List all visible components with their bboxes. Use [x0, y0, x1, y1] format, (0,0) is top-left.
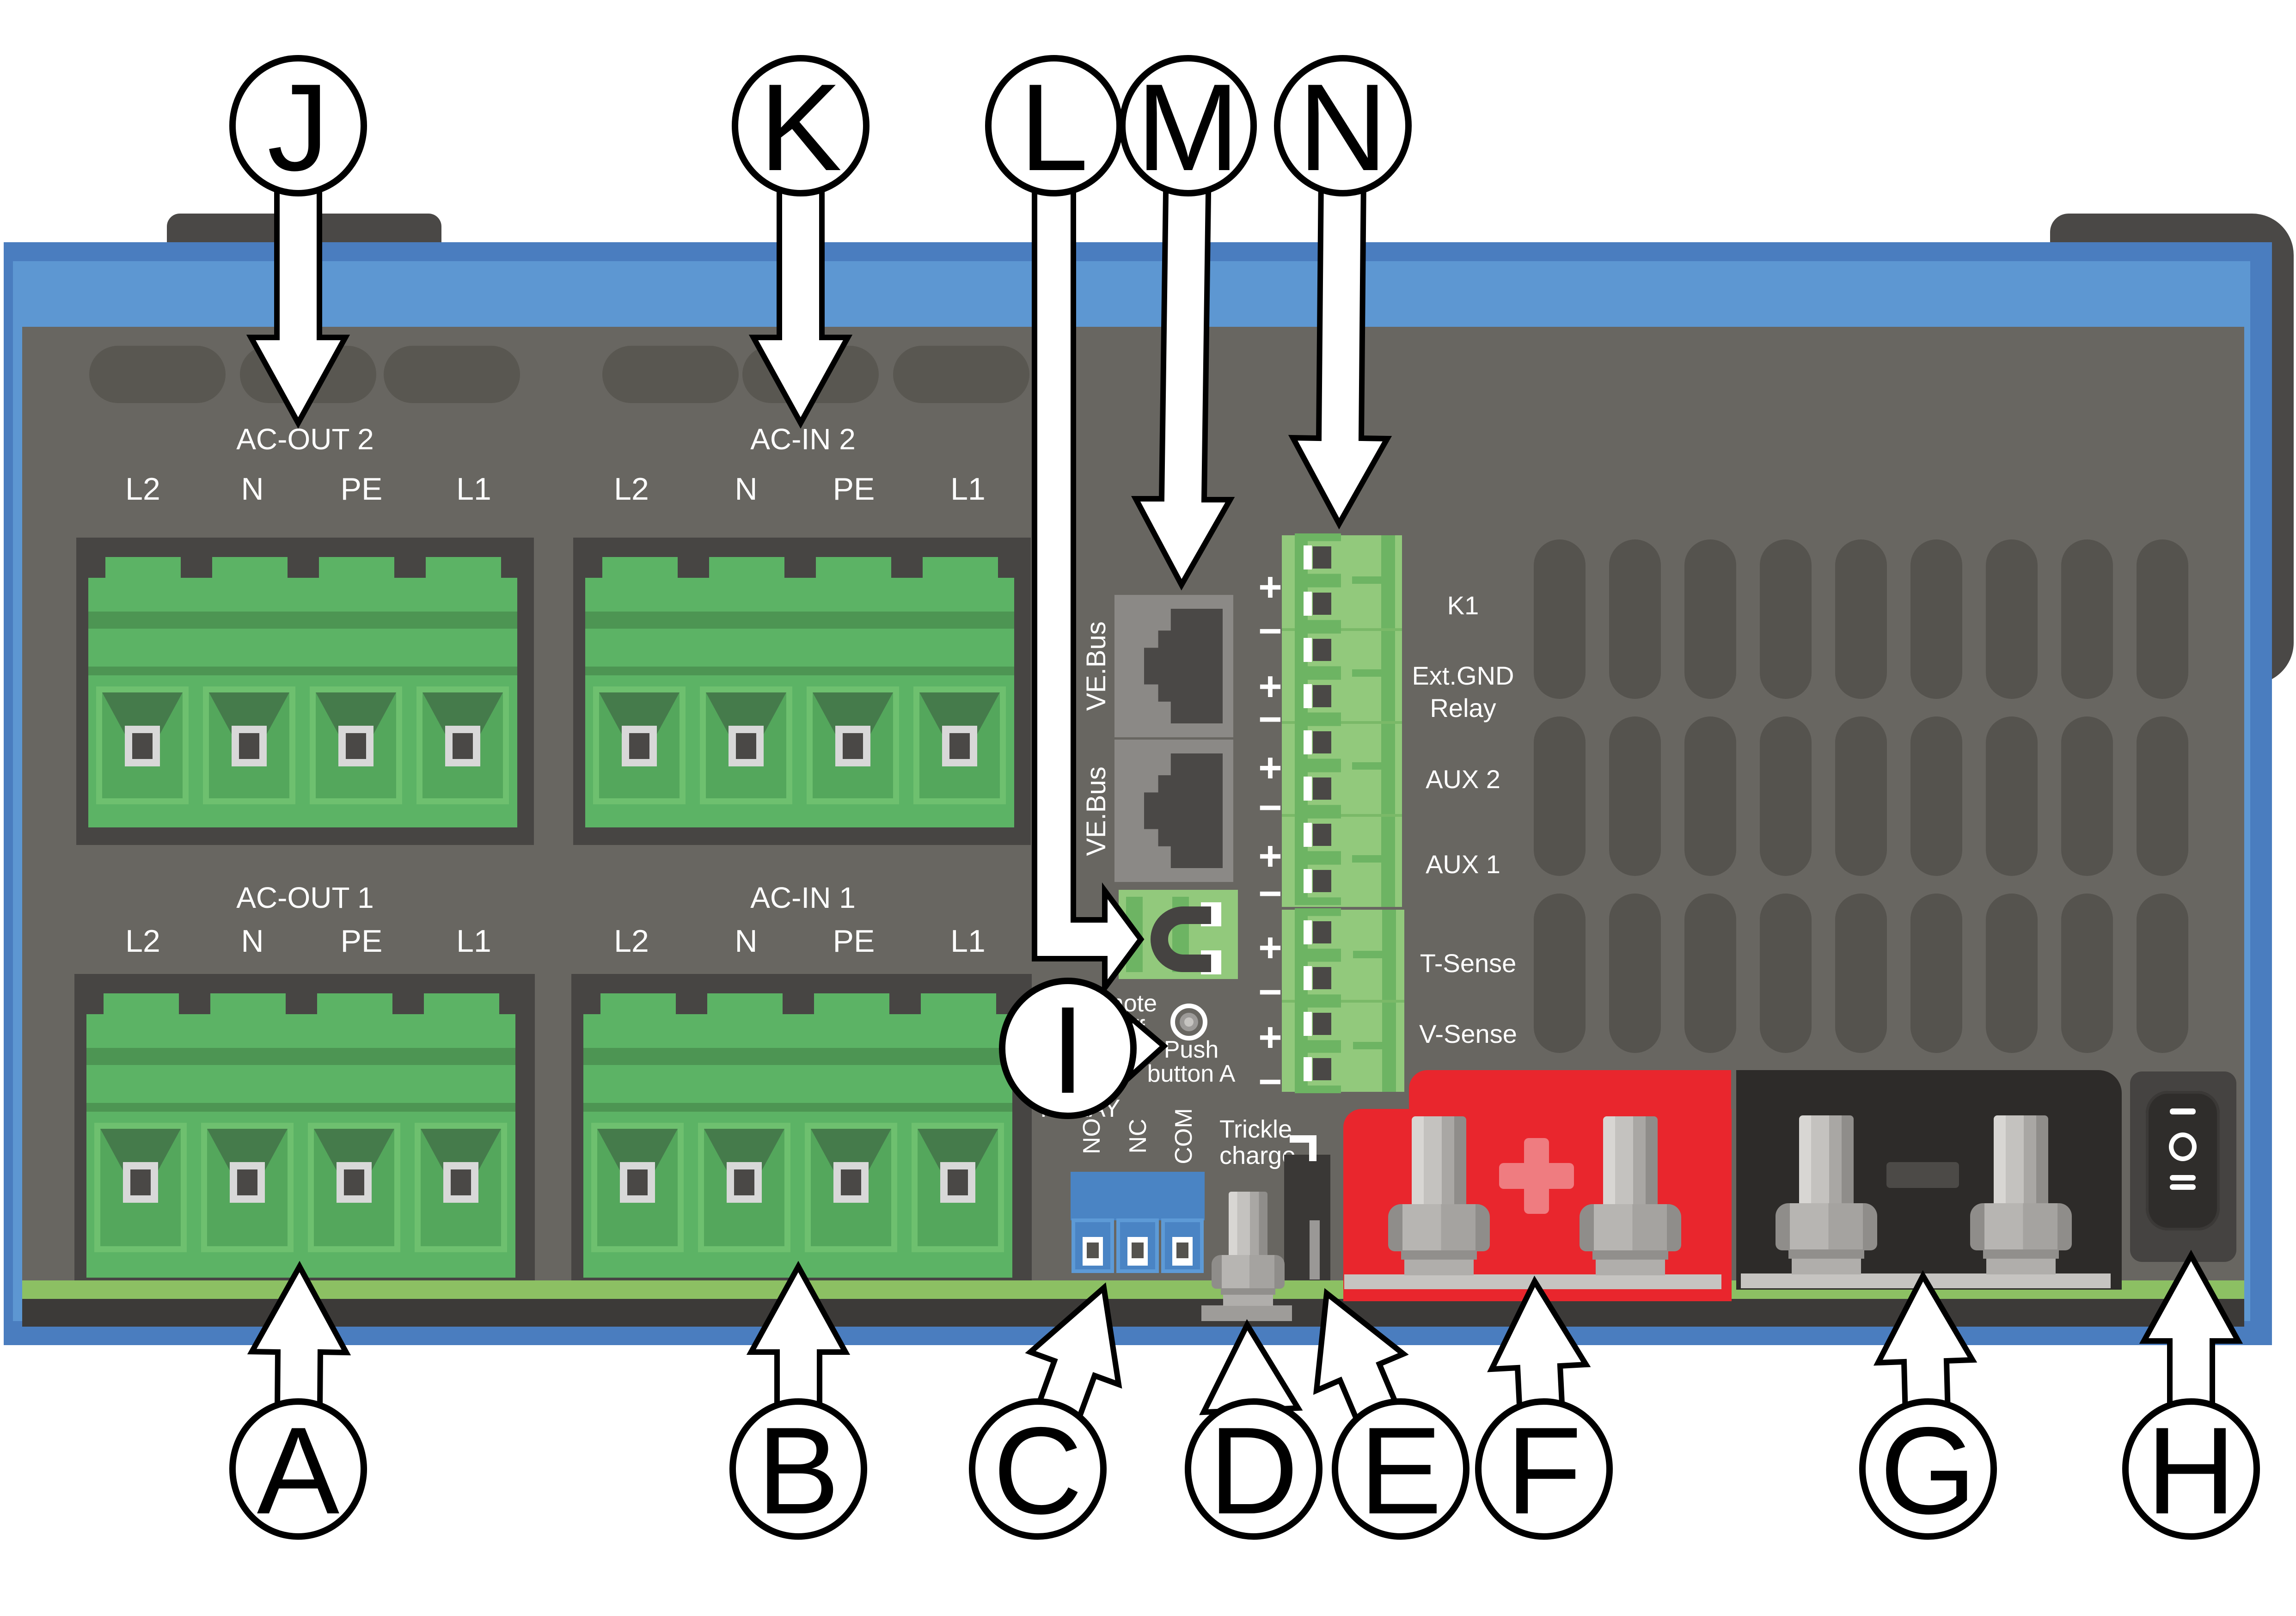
callout-letter-g: G [1880, 1401, 1976, 1540]
callout-letter-j: J [267, 58, 329, 196]
callout-letter-c: C [993, 1401, 1083, 1540]
arrow-l [1035, 129, 1141, 988]
callout-overlay: ABCDEFGHIJKLMN [0, 0, 2296, 1616]
callout-letter-d: D [1209, 1401, 1298, 1540]
callout-letter-a: A [257, 1401, 340, 1540]
callout-letter-h: H [2146, 1401, 2236, 1540]
trickle-pointer-icon [1290, 1139, 1313, 1161]
wire-loop-icon [1159, 915, 1211, 963]
callout-letter-b: B [757, 1401, 840, 1540]
callout-letter-l: L [1019, 58, 1088, 196]
callout-letter-e: E [1359, 1401, 1442, 1540]
callout-letter-f: F [1506, 1401, 1582, 1540]
callout-letter-k: K [759, 58, 842, 196]
callout-letter-i: I [1051, 980, 1085, 1119]
callout-letter-n: N [1298, 58, 1388, 196]
connection-panel-diagram: AC-OUT 2L2NPEL1AC-IN 2L2NPEL1AC-OUT 1L2N… [0, 0, 2296, 1616]
callout-letter-m: M [1136, 58, 1239, 196]
